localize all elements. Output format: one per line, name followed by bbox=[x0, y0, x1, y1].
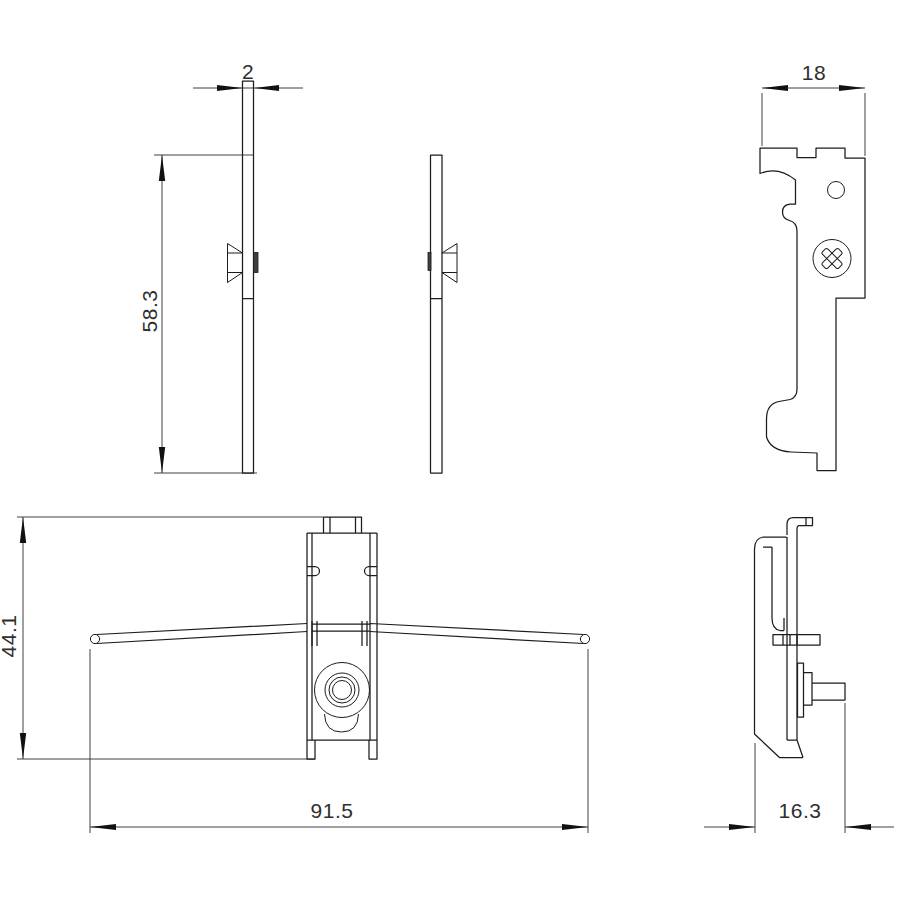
phillips-screw-icon bbox=[821, 248, 843, 270]
view-bracket-side-profile bbox=[760, 148, 865, 471]
arm-tip-right bbox=[580, 634, 589, 643]
dim-label-assembly-width: 91.5 bbox=[311, 799, 354, 822]
dim-line bbox=[154, 155, 257, 473]
view-plate-side-a bbox=[228, 81, 259, 473]
plate-a-outline bbox=[243, 81, 254, 473]
boss-mid bbox=[325, 673, 359, 707]
boss-outer bbox=[315, 663, 370, 718]
view-assembly-side bbox=[755, 518, 846, 758]
view-assembly-front bbox=[90, 517, 589, 759]
plate-b-outline bbox=[431, 155, 443, 473]
dim-label-assembly-height: 44.1 bbox=[0, 615, 20, 658]
technical-drawing-canvas: 2 58.3 18 bbox=[0, 0, 900, 900]
dim-arrowheads bbox=[729, 824, 871, 830]
pilot-hole bbox=[828, 182, 845, 199]
technical-drawing-page: 2 58.3 18 bbox=[0, 0, 900, 900]
side-arm-and-screw bbox=[773, 635, 845, 718]
boss-lower-tab bbox=[325, 714, 359, 732]
screw-tip-a bbox=[254, 253, 259, 273]
arm-tip-left bbox=[90, 634, 99, 643]
dim-assembly-height: 44.1 bbox=[0, 517, 324, 759]
dim-line bbox=[762, 88, 865, 156]
screw-head-circle bbox=[813, 240, 851, 278]
dim-label-plate-thickness: 2 bbox=[242, 60, 254, 83]
dim-bracket-width: 18 bbox=[762, 61, 865, 156]
dim-plate-thickness: 2 bbox=[193, 60, 303, 91]
dim-line bbox=[17, 517, 324, 759]
boss-core bbox=[333, 681, 352, 700]
screw-boss bbox=[315, 663, 370, 733]
screw-tip-b bbox=[428, 253, 431, 271]
dim-label-assembly-depth: 16.3 bbox=[779, 799, 822, 822]
phillips-bar-2 bbox=[821, 248, 843, 270]
countersunk-screw-b bbox=[442, 244, 457, 283]
dim-assembly-depth: 16.3 bbox=[704, 703, 894, 833]
phillips-bar-1 bbox=[821, 248, 843, 270]
countersunk-screw-a bbox=[228, 244, 243, 283]
view-plate-side-b bbox=[428, 155, 457, 473]
dim-label-plate-height: 58.3 bbox=[138, 290, 161, 333]
dim-assembly-width: 91.5 bbox=[90, 649, 588, 833]
dim-label-bracket-width: 18 bbox=[802, 61, 826, 84]
bracket-profile-outline bbox=[760, 148, 865, 471]
dim-plate-height: 58.3 bbox=[138, 155, 257, 473]
spring-arms bbox=[97, 621, 584, 646]
